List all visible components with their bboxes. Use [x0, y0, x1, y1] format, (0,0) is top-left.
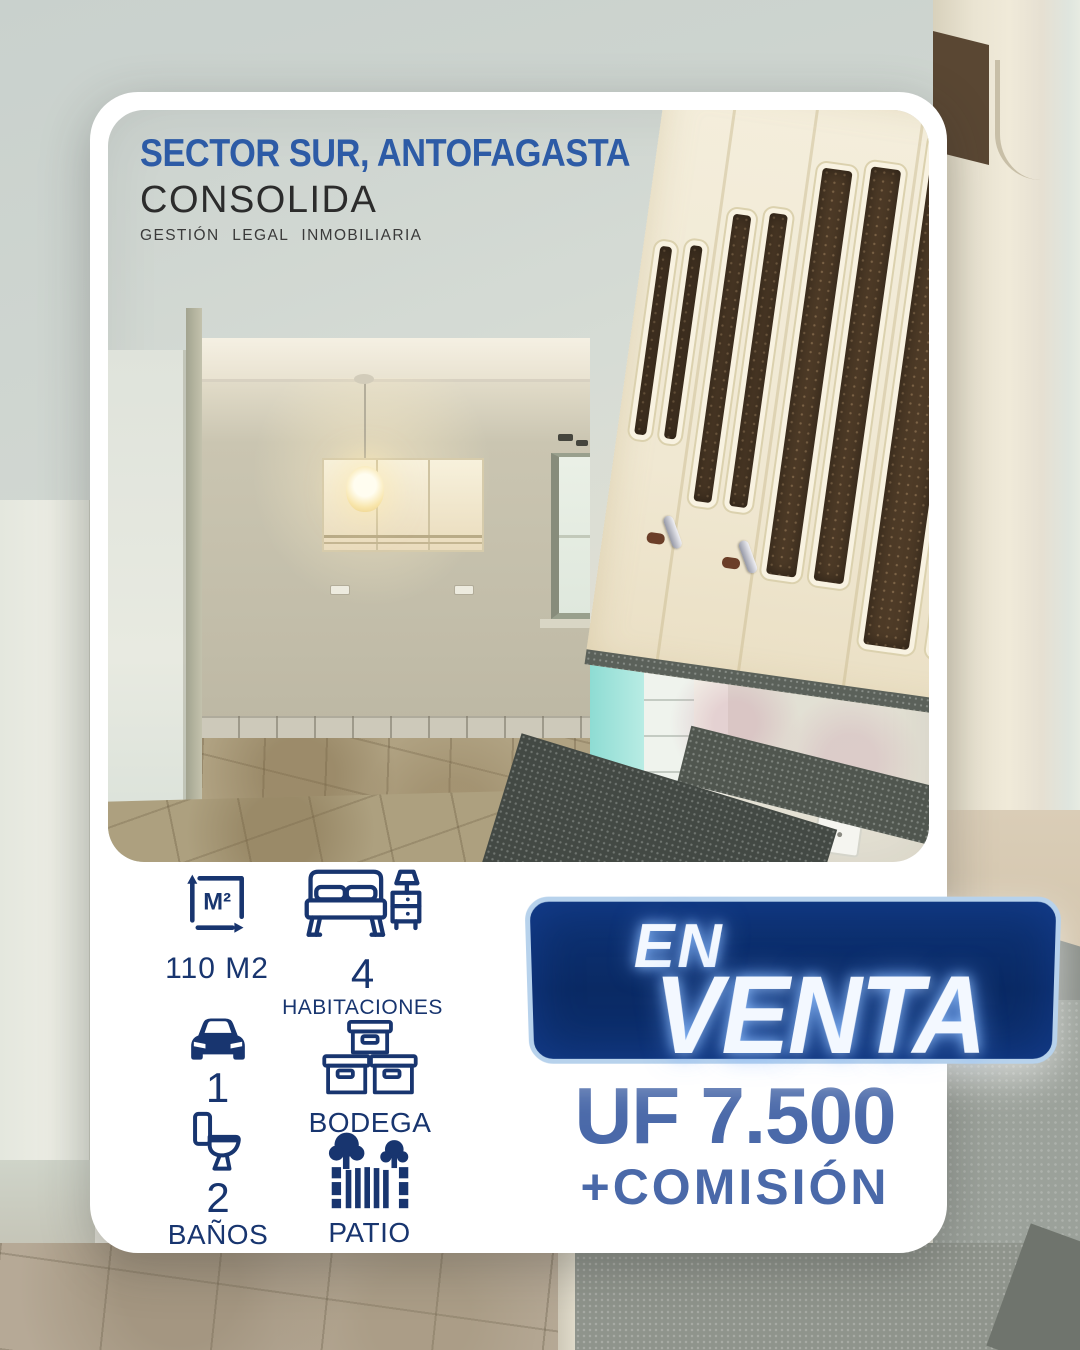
fence-trees-icon — [328, 1126, 412, 1212]
photo-left-wall — [108, 350, 186, 862]
wall-outlet — [454, 585, 474, 595]
window-bar — [559, 535, 590, 538]
bed-icon — [301, 864, 425, 952]
pendant-lamp — [346, 466, 384, 512]
wall-cabinet-trim — [324, 542, 482, 544]
car-icon — [184, 1014, 252, 1066]
toilet-icon — [188, 1110, 248, 1176]
bg-left-wall — [0, 500, 92, 1180]
sale-banner: EN VENTA — [524, 897, 1061, 1064]
bedrooms-label: HABITACIONES — [275, 996, 450, 1019]
cabinet-handle-wood — [646, 532, 665, 545]
property-photo: SECTOR SUR, ANTOFAGASTA CONSOLIDA GESTIÓ… — [108, 110, 929, 862]
cabinet-handle — [662, 514, 683, 549]
room-window — [551, 453, 590, 619]
spec-bathrooms: 2 BAÑOS — [148, 1110, 288, 1251]
bathrooms-count: 2 — [148, 1176, 288, 1220]
svg-text:M²: M² — [203, 888, 231, 915]
location-title: SECTOR SUR, ANTOFAGASTA — [140, 132, 630, 176]
wall-cabinet-trim — [324, 535, 482, 538]
cabinet-handle-wood — [721, 556, 740, 569]
bedrooms-count: 4 — [275, 952, 450, 996]
pendant-mount — [354, 374, 374, 384]
spec-bedrooms: 4 HABITACIONES — [275, 864, 450, 1019]
curtain-bracket — [576, 440, 588, 446]
wall-outlet — [330, 585, 350, 595]
spec-patio: PATIO — [302, 1126, 437, 1249]
flyer-canvas: SECTOR SUR, ANTOFAGASTA CONSOLIDA GESTIÓ… — [0, 0, 1080, 1350]
area-m2-icon: M² — [185, 870, 249, 936]
spec-storage: BODEGA — [300, 1020, 440, 1139]
patio-label: PATIO — [302, 1218, 437, 1249]
window-sill — [540, 619, 590, 628]
bathrooms-label: BAÑOS — [148, 1220, 288, 1251]
photo-front-floor — [108, 790, 541, 862]
brand-tagline: GESTIÓN LEGAL INMOBILIARIA — [140, 227, 697, 245]
room-ceiling — [202, 338, 590, 382]
spec-parking: 1 — [145, 1014, 290, 1110]
room-baseboard-tiles — [202, 716, 590, 738]
curtain-bracket — [558, 434, 573, 441]
sale-banner-line2: VENTA — [654, 968, 987, 1062]
bg-floor-tiles — [0, 1243, 600, 1350]
parking-count: 1 — [145, 1066, 290, 1110]
pendant-cord — [364, 382, 366, 468]
area-value: 110 M2 — [137, 952, 297, 986]
wall-cabinet — [322, 458, 484, 552]
price-commission: +COMISIÓN — [520, 1162, 950, 1212]
photo-doorway-pillar — [186, 308, 202, 862]
card-header: SECTOR SUR, ANTOFAGASTA CONSOLIDA GESTIÓ… — [140, 132, 697, 245]
boxes-icon — [322, 1020, 418, 1100]
brand-name: CONSOLIDA — [140, 179, 697, 222]
spec-area: M² 110 M2 — [137, 870, 297, 986]
